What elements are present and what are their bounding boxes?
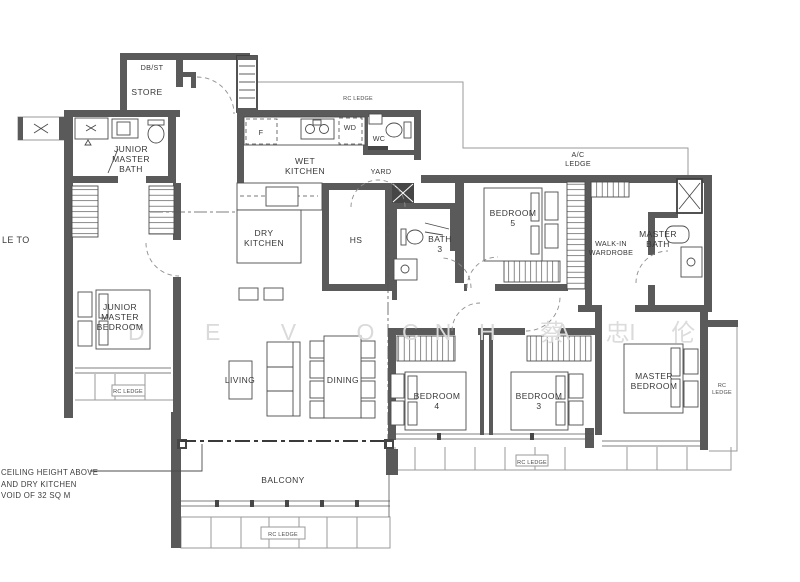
pillow (556, 402, 565, 425)
room-label-bedroom4-line1: BEDROOM (414, 391, 461, 401)
room-label-dry-kitchen-line2: KITCHEN (244, 238, 284, 248)
entry-window-column (237, 56, 257, 112)
pillow (531, 226, 539, 254)
room-label-junior-master-bedroom-line1: JUNIOR (103, 302, 137, 312)
side-table (78, 321, 92, 346)
ledge-label-ac-line1: A/C (572, 150, 585, 159)
side-table (569, 374, 583, 398)
ledge-label-ac-line2: LEDGE (565, 159, 591, 168)
ledge-label-bottom: RC LEDGE (268, 532, 298, 538)
room-label-yard: YARD (371, 167, 392, 176)
side-table (684, 381, 698, 407)
room-label-bedroom5-line1: BEDROOM (490, 208, 537, 218)
room-label-wet-kitchen-line2: KITCHEN (285, 166, 325, 176)
walkin-wardrobe-left-unit (567, 182, 585, 289)
room-label-junior-master-bath-line2: MASTER (112, 154, 150, 164)
side-table (684, 349, 698, 374)
chair (361, 401, 375, 418)
room-label-store: STORE (131, 87, 162, 97)
room-label-wc: WC (373, 134, 386, 143)
room-label-junior-master-bedroom-line3: BEDROOM (97, 322, 144, 332)
side-table (391, 374, 404, 398)
floor-plan-page: D E V O N C H A I 蔡 忠 伦 DB/ST STORE JUNI… (0, 0, 800, 582)
room-label-junior-master-bath-line1: JUNIOR (114, 144, 148, 154)
side-table (78, 292, 92, 317)
chair (310, 381, 324, 398)
level-marker (85, 140, 91, 145)
bedroom5-bed (484, 188, 558, 261)
wc-toilet-bowl (386, 123, 402, 137)
watermark: D E V O N C H A I 蔡 忠 伦 (128, 319, 712, 347)
chair (310, 401, 324, 418)
room-label-bath3-line1: BATH (428, 234, 452, 244)
room-label-hs: HS (350, 235, 363, 245)
wc-toilet-tank (404, 122, 411, 138)
room-label-master-bath-line2: BATH (646, 239, 670, 249)
chair (310, 361, 324, 378)
stool (239, 288, 258, 300)
ledge-label-bottom-right: RC LEDGE (517, 460, 547, 466)
entry-door-swing (197, 77, 234, 114)
pillow (408, 402, 417, 425)
room-label-bedroom5-line2: 5 (510, 218, 515, 228)
watermark-text-cjk: 蔡 忠 伦 (540, 319, 712, 347)
room-label-master-bedroom-line2: BEDROOM (631, 381, 678, 391)
ledge-label-right-line2: LEDGE (712, 390, 732, 396)
master-bath-door-swing (636, 251, 668, 283)
toilet-tank (148, 120, 164, 125)
master-bath-fixtures (666, 179, 702, 277)
room-label-bedroom4-line2: 4 (434, 401, 439, 411)
room-label-walkin-wardrobe-line1: WALK-IN (595, 239, 627, 248)
room-label-bedroom3-line2: 3 (536, 401, 541, 411)
walkin-wardrobe-top-unit (591, 182, 629, 197)
fixture-label-fridge: F (259, 128, 264, 137)
room-label-bedroom3-line1: BEDROOM (516, 391, 563, 401)
room-label-wet-kitchen-line1: WET (295, 156, 315, 166)
bedroom4-bed (391, 372, 466, 430)
room-label-living: LIVING (225, 375, 255, 385)
room-label-walkin-wardrobe-line2: WARDROBE (589, 248, 633, 257)
sofa (267, 342, 300, 416)
room-label-junior-master-bedroom-line2: MASTER (101, 312, 139, 322)
wardrobe-bedroom5 (504, 261, 560, 282)
room-label-master-bath-line1: MASTER (639, 229, 677, 239)
sink (394, 259, 417, 280)
stool (264, 288, 283, 300)
bedroom5-door-swing (467, 257, 498, 288)
room-label-master-bedroom-line1: MASTER (635, 371, 673, 381)
junior-bedroom-door-swing (146, 243, 179, 276)
toilet-bowl (407, 230, 423, 244)
ledge-label-right-line1: RC (718, 383, 726, 389)
left-cut-annotation: LE TO (2, 235, 30, 245)
fixture-label-washer-dryer: WD (344, 123, 357, 132)
side-table (569, 401, 583, 425)
side-table (545, 192, 558, 220)
ledge-label-left: RC LEDGE (113, 389, 143, 395)
room-label-dbst: DB/ST (141, 63, 164, 72)
wardrobe-junior-right (149, 186, 174, 234)
wc-sink (369, 114, 382, 124)
toilet-tank (401, 229, 406, 245)
ceiling-note-line3: VOID OF 32 SQ M (1, 491, 71, 500)
bedroom3-bed (511, 372, 583, 430)
vanity-sink (681, 247, 702, 277)
ceiling-note-line1: CEILING HEIGHT ABOVE (1, 468, 98, 477)
room-label-bath3-line2: 3 (437, 244, 442, 254)
room-label-balcony: BALCONY (261, 475, 304, 485)
wardrobe-junior-left (72, 186, 98, 237)
floor-plan-drawing: D E V O N C H A I 蔡 忠 伦 DB/ST STORE JUNI… (0, 0, 800, 582)
toilet-bowl (148, 125, 164, 143)
chair (361, 361, 375, 378)
ledge-label-top: RC LEDGE (343, 96, 373, 102)
room-label-dining: DINING (327, 375, 359, 385)
side-table (545, 224, 558, 248)
side-table (391, 401, 404, 425)
ceiling-note-line2: AND DRY KITCHEN (1, 480, 77, 489)
chair (361, 381, 375, 398)
room-label-dry-kitchen-line1: DRY (255, 228, 274, 238)
room-label-junior-master-bath-line3: BATH (119, 164, 143, 174)
